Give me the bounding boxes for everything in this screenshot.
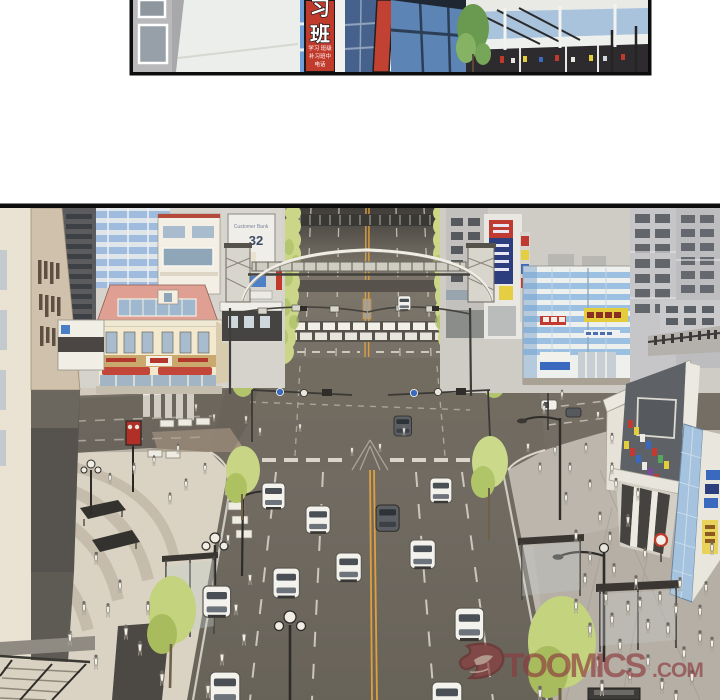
svg-text:Customer Bank: Customer Bank	[234, 224, 269, 230]
svg-text:习: 习	[310, 0, 330, 20]
svg-text:补习班中: 补习班中	[309, 52, 331, 60]
svg-text:TOOMICS: TOOMICS	[504, 647, 646, 685]
svg-text:.COM: .COM	[652, 659, 703, 682]
svg-text:学习 班级: 学习 班级	[308, 44, 332, 52]
svg-text:班: 班	[310, 23, 330, 46]
svg-text:电话: 电话	[314, 60, 326, 68]
